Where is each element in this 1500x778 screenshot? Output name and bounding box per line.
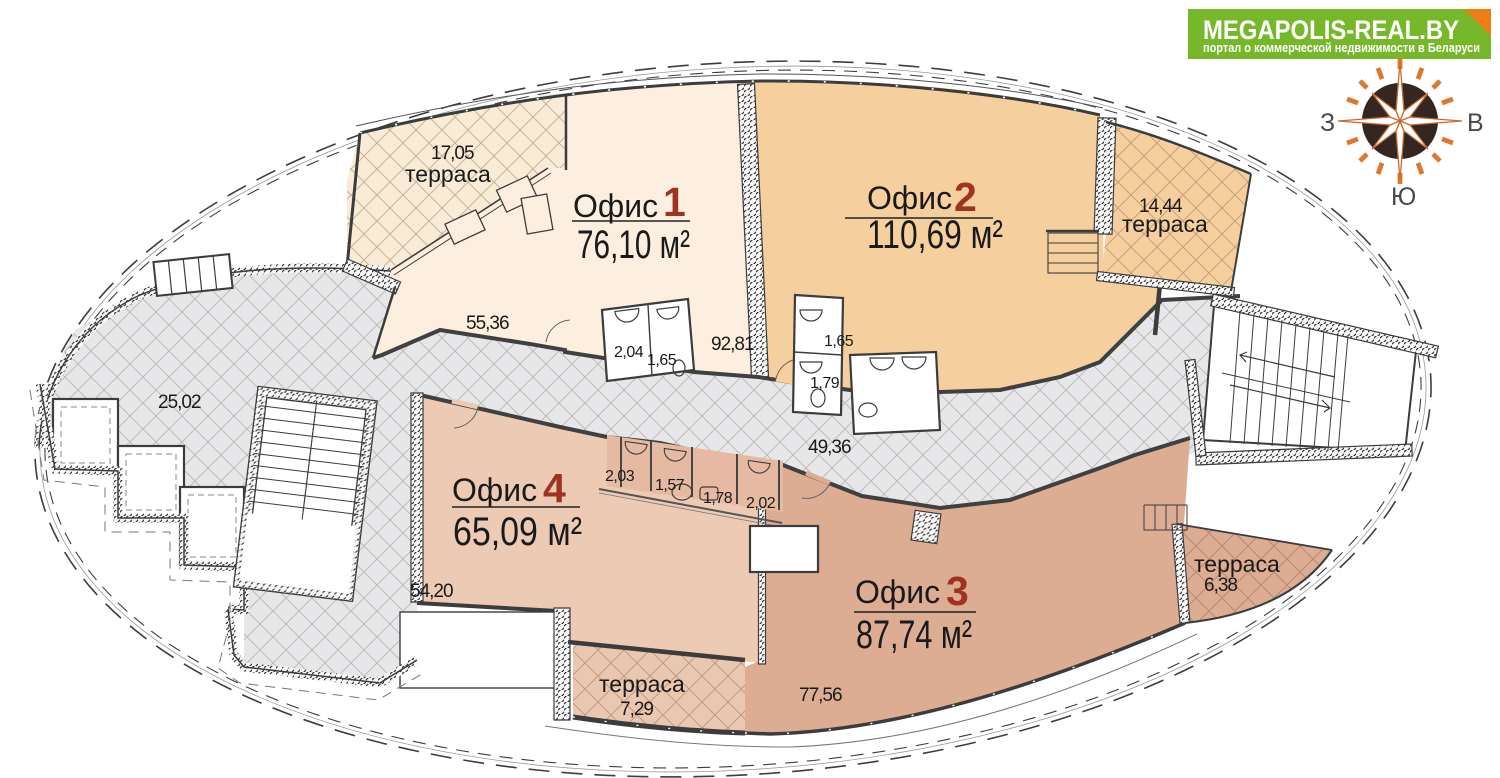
- svg-text:76,10 м²: 76,10 м²: [577, 223, 690, 267]
- svg-text:110,69 м²: 110,69 м²: [867, 213, 1003, 257]
- svg-text:1,79: 1,79: [810, 375, 840, 392]
- svg-text:1,78: 1,78: [703, 490, 733, 507]
- svg-text:портал о коммерческой недвижим: портал о коммерческой недвижимости в Бел…: [1203, 41, 1480, 55]
- svg-text:87,74 м²: 87,74 м²: [856, 613, 972, 657]
- svg-text:2,02: 2,02: [746, 495, 776, 512]
- svg-text:1: 1: [663, 179, 686, 225]
- svg-text:терраса: терраса: [1122, 211, 1208, 237]
- svg-text:25,02: 25,02: [158, 392, 201, 413]
- svg-text:6,38: 6,38: [1204, 575, 1237, 596]
- svg-text:Офис: Офис: [573, 188, 658, 224]
- svg-text:В: В: [1467, 109, 1484, 137]
- svg-text:Офис: Офис: [855, 574, 940, 610]
- svg-text:Офис: Офис: [452, 472, 537, 508]
- svg-text:З: З: [1320, 109, 1335, 137]
- svg-text:55,36: 55,36: [466, 313, 509, 334]
- svg-text:4: 4: [543, 465, 566, 511]
- svg-text:1,65: 1,65: [647, 352, 677, 369]
- svg-text:1,65: 1,65: [824, 333, 854, 350]
- svg-text:92,81: 92,81: [711, 334, 754, 355]
- svg-text:65,09 м²: 65,09 м²: [453, 510, 582, 554]
- svg-text:Офис: Офис: [867, 180, 952, 216]
- svg-text:3: 3: [946, 568, 969, 614]
- svg-text:терраса: терраса: [599, 671, 685, 697]
- svg-text:54,20: 54,20: [410, 581, 453, 602]
- svg-text:терраса: терраса: [405, 161, 491, 187]
- svg-text:2,03: 2,03: [605, 468, 635, 485]
- svg-text:терраса: терраса: [1194, 551, 1280, 577]
- svg-text:77,56: 77,56: [799, 685, 842, 706]
- svg-text:1,57: 1,57: [655, 477, 685, 494]
- svg-text:49,36: 49,36: [808, 437, 851, 458]
- svg-text:2,04: 2,04: [614, 344, 644, 361]
- svg-text:Ю: Ю: [1391, 183, 1416, 211]
- svg-text:7,29: 7,29: [620, 699, 653, 720]
